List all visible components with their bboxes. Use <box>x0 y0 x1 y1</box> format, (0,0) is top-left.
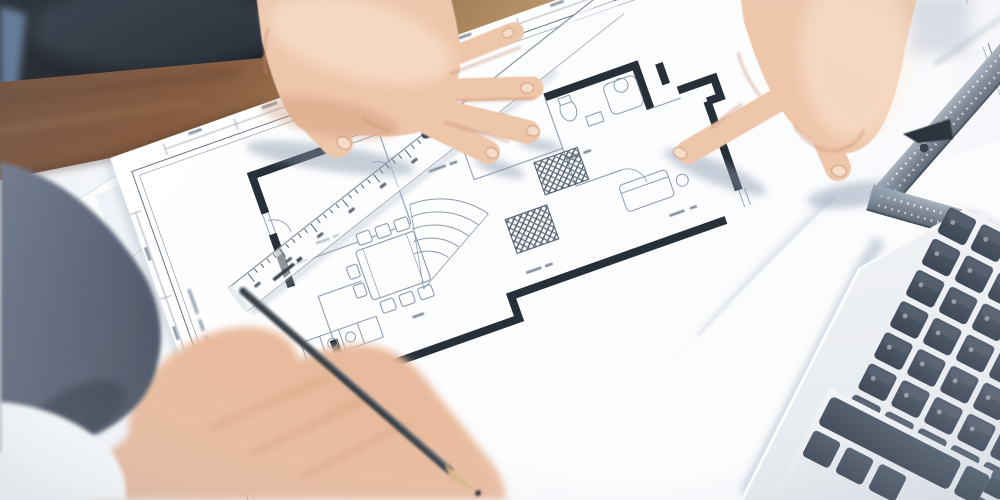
architects-blueprint-photo <box>0 0 1000 500</box>
photo-stage: Close-up photograph of an architects' wo… <box>0 0 1000 500</box>
vignette <box>0 0 1000 500</box>
